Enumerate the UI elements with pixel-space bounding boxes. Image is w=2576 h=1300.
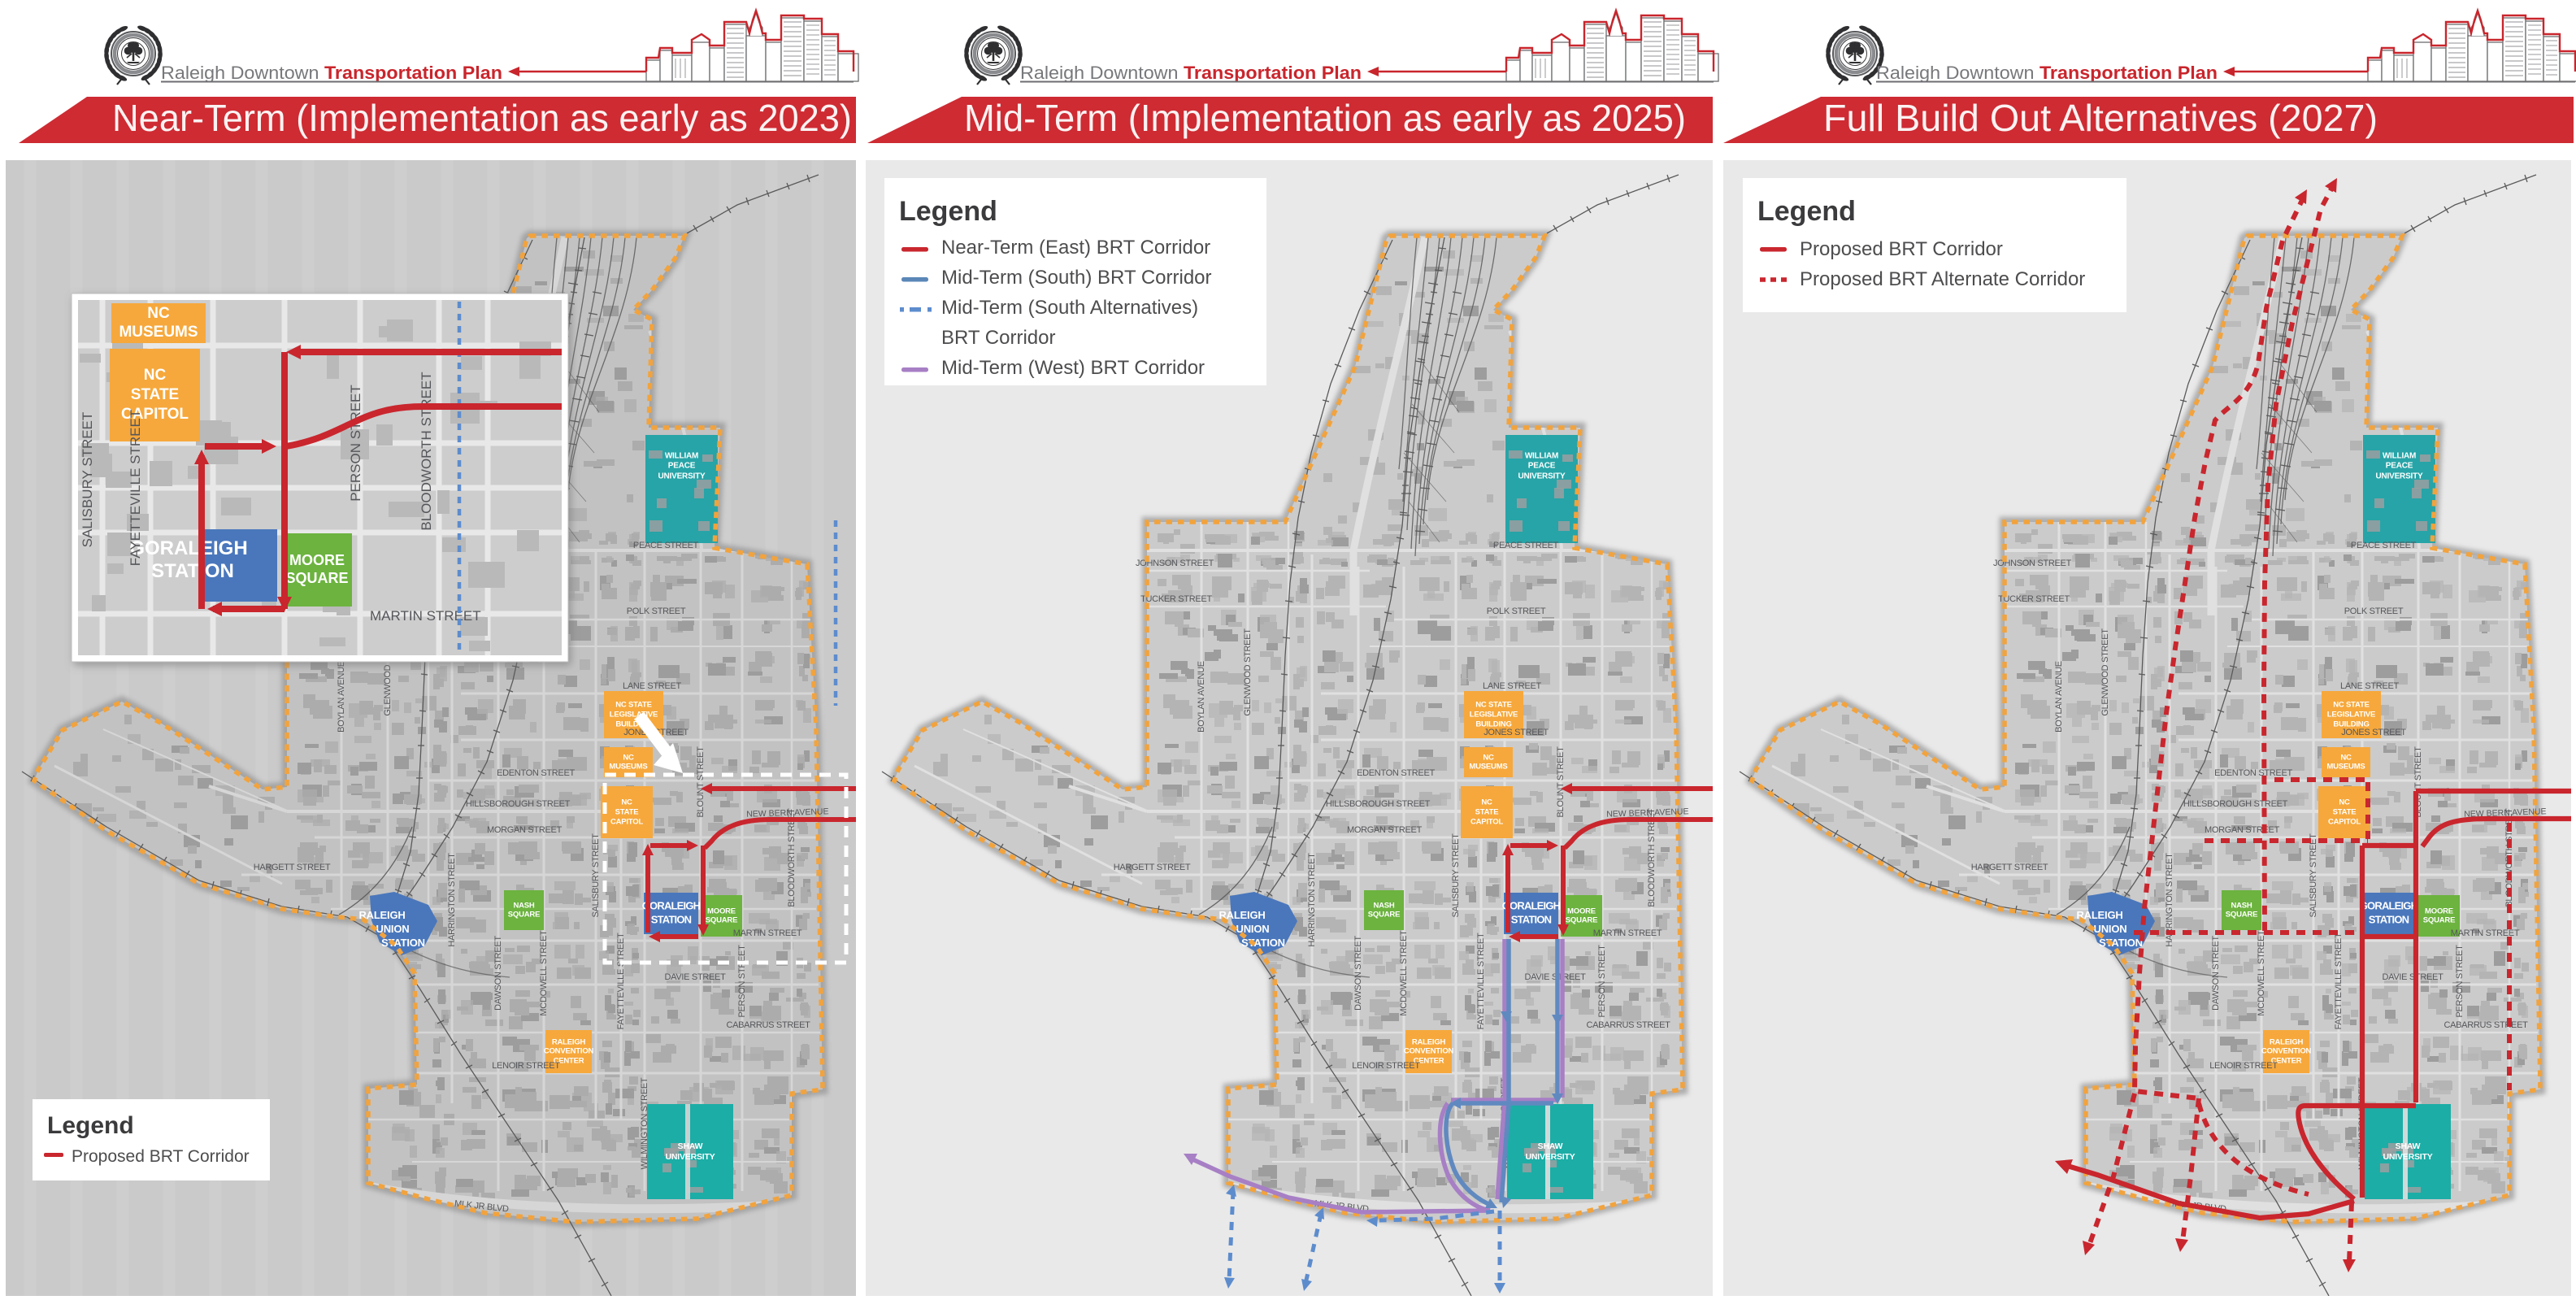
svg-text:Mid-Term (West) BRT Corridor: Mid-Term (West) BRT Corridor [941, 357, 1205, 379]
svg-text:Legend: Legend [899, 196, 997, 227]
svg-text:GORALEIGH: GORALEIGH [129, 537, 247, 559]
svg-text:MARTIN STREET: MARTIN STREET [370, 608, 481, 624]
svg-text:SQUARE: SQUARE [285, 570, 348, 586]
svg-text:Near-Term (Implementation as e: Near-Term (Implementation as early as 20… [112, 97, 852, 139]
svg-text:FAYETTEVILLE STREET: FAYETTEVILLE STREET [128, 410, 143, 566]
svg-text:Raleigh Downtown Transportatio: Raleigh Downtown Transportation Plan [1876, 63, 2218, 83]
svg-text:Legend: Legend [47, 1112, 134, 1139]
svg-text:Legend: Legend [1757, 196, 1856, 227]
svg-text:MUSEUMS: MUSEUMS [119, 324, 198, 341]
svg-text:Proposed BRT Corridor: Proposed BRT Corridor [1800, 238, 2003, 260]
svg-text:Mid-Term (South Alternatives): Mid-Term (South Alternatives) [941, 297, 1198, 319]
svg-text:Raleigh Downtown Transportatio: Raleigh Downtown Transportation Plan [161, 63, 502, 83]
svg-text:NC: NC [147, 305, 170, 322]
svg-text:STATION: STATION [151, 560, 234, 582]
svg-text:MOORE: MOORE [289, 552, 345, 568]
svg-text:Mid-Term (Implementation as ea: Mid-Term (Implementation as early as 202… [964, 97, 1686, 139]
svg-text:BLOODWORTH STREET: BLOODWORTH STREET [419, 372, 434, 530]
svg-text:PERSON STREET: PERSON STREET [348, 385, 363, 502]
svg-text:SALISBURY STREET: SALISBURY STREET [80, 412, 95, 548]
svg-text:BRT Corridor: BRT Corridor [941, 327, 1055, 349]
svg-text:NC: NC [144, 367, 167, 384]
svg-text:Near-Term (East) BRT Corridor: Near-Term (East) BRT Corridor [941, 237, 1210, 259]
svg-text:Full Build Out Alternatives (2: Full Build Out Alternatives (2027) [1823, 97, 2378, 139]
svg-text:Proposed BRT Corridor: Proposed BRT Corridor [72, 1147, 250, 1166]
svg-text:Mid-Term (South) BRT Corridor: Mid-Term (South) BRT Corridor [941, 267, 1212, 289]
svg-text:Proposed BRT Alternate Corrido: Proposed BRT Alternate Corridor [1800, 268, 2085, 290]
svg-text:Raleigh Downtown Transportatio: Raleigh Downtown Transportation Plan [1020, 63, 1362, 83]
svg-text:STATE: STATE [131, 386, 179, 403]
